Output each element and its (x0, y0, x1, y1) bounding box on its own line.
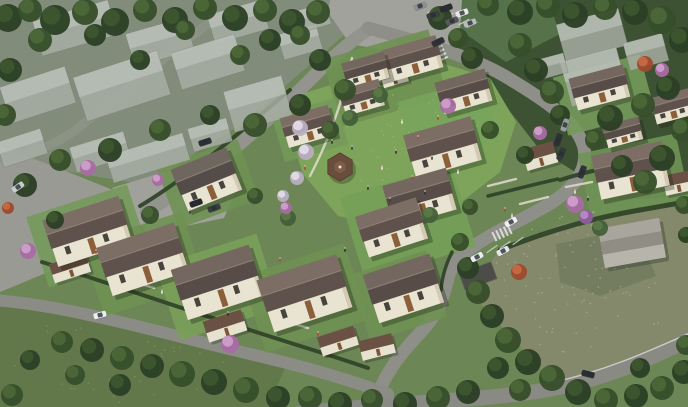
tree-highlight (635, 171, 649, 185)
speckle (556, 233, 558, 235)
speckle (538, 293, 540, 295)
tree-highlight (658, 77, 672, 91)
person (511, 215, 513, 218)
speckle (586, 312, 588, 314)
speckle (436, 94, 438, 96)
person-head (431, 155, 433, 157)
tree-highlight (633, 94, 647, 108)
tree-highlight (22, 351, 34, 363)
speckle (165, 319, 167, 321)
speckle (594, 241, 596, 243)
tree-highlight (42, 7, 60, 25)
speckle (581, 301, 583, 303)
speckle (222, 362, 224, 364)
speckle (435, 111, 437, 113)
person-head (331, 139, 333, 141)
speckle (623, 292, 625, 294)
tree-highlight (674, 361, 688, 375)
tree-highlight (235, 378, 251, 394)
speckle (196, 388, 198, 390)
person (381, 167, 383, 170)
tree-highlight (151, 120, 164, 133)
tree-highlight (3, 385, 16, 398)
speckle (541, 292, 543, 294)
speckle (516, 308, 518, 310)
person-head (587, 196, 589, 198)
person-head (574, 189, 576, 191)
speckle (654, 282, 656, 284)
speckle (583, 299, 585, 301)
person (395, 151, 397, 154)
speckle (61, 383, 63, 385)
speckle (564, 267, 566, 269)
tree-highlight (103, 9, 120, 26)
speckle (70, 388, 72, 390)
speckle (523, 253, 525, 255)
speckle (93, 389, 95, 391)
speckle (617, 315, 619, 317)
speckle (577, 226, 579, 228)
person (331, 141, 333, 144)
person (504, 209, 506, 212)
speckle (604, 297, 606, 299)
speckle (555, 255, 557, 257)
tree-highlight (482, 122, 493, 133)
person (417, 137, 419, 140)
blossom-highlight (153, 175, 160, 182)
tree-highlight (202, 106, 214, 118)
tree-highlight (132, 51, 144, 63)
person-head (504, 207, 506, 209)
person-head (417, 135, 419, 137)
speckle (507, 263, 509, 265)
speckle (609, 290, 611, 292)
person (279, 259, 281, 262)
tree-highlight (459, 258, 472, 271)
tree-highlight (526, 59, 540, 73)
tree-highlight (552, 106, 564, 118)
tree-highlight (497, 328, 513, 344)
tree-highlight (624, 0, 640, 16)
tree-highlight (112, 347, 126, 361)
speckle (527, 256, 529, 258)
speckle (591, 224, 593, 226)
tree-highlight (599, 106, 615, 122)
speckle (46, 325, 48, 327)
speckle (572, 287, 574, 289)
tree-highlight (567, 380, 583, 396)
tree-highlight (613, 156, 626, 169)
speckle (598, 286, 600, 288)
tree-highlight (428, 387, 442, 401)
tree-highlight (564, 3, 580, 19)
speckle (394, 147, 396, 149)
tree-highlight (336, 80, 349, 93)
tree-highlight (224, 6, 240, 22)
speckle (540, 278, 542, 280)
speckle (562, 351, 564, 353)
speckle (88, 382, 90, 384)
tree-highlight (463, 48, 476, 61)
person (161, 291, 163, 294)
tree-highlight (517, 350, 533, 366)
blossom-highlight (281, 203, 288, 210)
blossom-highlight (656, 64, 664, 72)
speckle (534, 302, 536, 304)
tree-highlight (468, 281, 482, 295)
tree-highlight (311, 50, 324, 63)
speckle (387, 124, 389, 126)
speckle (80, 327, 82, 329)
person-head (161, 289, 163, 291)
person (95, 251, 97, 254)
speckle (14, 365, 16, 367)
tree-highlight (30, 29, 44, 43)
speckle (172, 347, 174, 349)
person-head (367, 185, 369, 187)
tree-highlight (395, 393, 409, 407)
tree-highlight (652, 377, 666, 391)
tree-highlight (373, 88, 383, 98)
speckle (531, 229, 533, 231)
speckle (496, 262, 498, 264)
person-head (279, 257, 281, 259)
speckle (398, 108, 400, 110)
speckle (433, 99, 435, 101)
person (431, 157, 433, 160)
speckle (357, 163, 359, 165)
speckle (570, 244, 572, 246)
person-head (401, 119, 403, 121)
tree-highlight (308, 1, 322, 15)
speckle (108, 379, 110, 381)
person-head (437, 115, 439, 117)
person-head (395, 149, 397, 151)
tree-highlight (650, 7, 667, 24)
speckle (347, 126, 349, 128)
speckle (381, 130, 383, 132)
tree-highlight (248, 189, 258, 199)
speckle (587, 234, 589, 236)
person-head (389, 197, 391, 199)
tree-highlight (177, 21, 189, 33)
tree-highlight (111, 375, 124, 388)
tree-highlight (86, 25, 99, 38)
person-head (381, 165, 383, 167)
speckle (147, 341, 149, 343)
speckle (585, 289, 587, 291)
gazebo-finial (339, 166, 342, 169)
speckle (535, 318, 537, 320)
person (437, 117, 439, 120)
speckle (653, 323, 655, 325)
person-head (304, 165, 306, 167)
person (424, 192, 426, 195)
tree-highlight (67, 366, 79, 378)
person (389, 199, 391, 202)
blossom-highlight (3, 203, 10, 210)
speckle (595, 327, 597, 329)
speckle (386, 168, 388, 170)
tree-highlight (322, 122, 333, 133)
speckle (405, 151, 407, 153)
speckle (186, 327, 188, 329)
speckle (629, 294, 631, 296)
tree-highlight (511, 380, 524, 393)
speckle (505, 295, 507, 297)
person (351, 147, 353, 150)
person-head (227, 311, 229, 313)
person-head (317, 331, 319, 333)
blossom-highlight (21, 244, 31, 254)
tree-highlight (541, 366, 557, 382)
person (189, 211, 191, 214)
tree-highlight (142, 207, 153, 218)
speckle (602, 267, 604, 269)
speckle (428, 102, 430, 104)
speckle (139, 381, 141, 383)
scene-svg (0, 0, 688, 407)
speckle (161, 353, 163, 355)
tree-highlight (53, 332, 66, 345)
speckle (458, 117, 460, 119)
tree-highlight (100, 139, 114, 153)
speckle (539, 344, 541, 346)
person-head (351, 145, 353, 147)
speckle (592, 292, 594, 294)
speckle (561, 286, 563, 288)
blossom-highlight (638, 57, 648, 67)
person (304, 167, 306, 170)
blossom-highlight (222, 336, 233, 347)
person (457, 171, 459, 174)
tree-highlight (517, 147, 528, 158)
speckle (173, 351, 175, 353)
tree-highlight (232, 46, 244, 58)
tree-highlight (626, 385, 640, 399)
blossom-highlight (534, 127, 542, 135)
speckle (567, 303, 569, 305)
blossom-highlight (441, 99, 451, 109)
person-head (189, 209, 191, 211)
blossom-highlight (291, 172, 299, 180)
tree-highlight (676, 197, 687, 208)
tree-highlight (510, 34, 524, 48)
speckle (620, 286, 622, 288)
speckle (392, 94, 394, 96)
speckle (113, 396, 115, 398)
speckle (593, 211, 595, 213)
tree-highlight (463, 200, 473, 210)
tree-highlight (343, 111, 353, 121)
speckle (595, 268, 597, 270)
tree-highlight (489, 358, 502, 371)
tree-highlight (74, 0, 90, 16)
speckle (657, 322, 659, 324)
speckle (528, 245, 530, 247)
speckle (626, 292, 628, 294)
speckle (595, 258, 597, 260)
speckle (371, 150, 373, 152)
tree-highlight (452, 234, 463, 245)
speckle (130, 315, 132, 317)
person-head (511, 213, 513, 215)
tree-highlight (300, 387, 314, 401)
speckle (539, 326, 541, 328)
speckle (154, 345, 156, 347)
tree-highlight (51, 150, 64, 163)
person (227, 313, 229, 316)
tree-highlight (0, 59, 14, 73)
speckle (514, 261, 516, 263)
blossom-highlight (512, 265, 522, 275)
speckle (561, 216, 563, 218)
speckle (575, 332, 577, 334)
speckle (556, 254, 558, 256)
speckle (164, 349, 166, 351)
speckle (73, 388, 75, 390)
tree-highlight (542, 81, 556, 95)
tree-highlight (203, 370, 219, 386)
person-head (457, 169, 459, 171)
speckle (551, 331, 553, 333)
tree-highlight (330, 393, 344, 407)
person-head (95, 249, 97, 251)
blossom-highlight (580, 211, 588, 219)
speckle (134, 376, 136, 378)
speckle (559, 218, 561, 220)
speckle (546, 331, 548, 333)
tree-highlight (47, 212, 58, 223)
person (367, 187, 369, 190)
speckle (599, 277, 601, 279)
speckle (392, 136, 394, 138)
tree-highlight (281, 10, 297, 26)
speckle (525, 285, 527, 287)
speckle (567, 232, 569, 234)
speckle (504, 279, 506, 281)
speckle (118, 401, 120, 403)
tree-highlight (268, 387, 282, 401)
tree-highlight (245, 114, 259, 128)
tree-highlight (363, 390, 376, 403)
tree-highlight (482, 305, 496, 319)
speckle (199, 352, 201, 354)
speckle (47, 331, 49, 333)
tree-highlight (292, 26, 304, 38)
speckle (383, 134, 385, 136)
tree-highlight (450, 29, 462, 41)
person (587, 198, 589, 201)
person (574, 191, 576, 194)
speckle (402, 148, 404, 150)
tree-highlight (587, 131, 599, 143)
tree-highlight (142, 355, 156, 369)
aerial-view-render (0, 0, 688, 407)
tree-highlight (423, 208, 433, 218)
speckle (592, 212, 594, 214)
tree-highlight (261, 30, 274, 43)
speckle (590, 303, 592, 305)
speckle (590, 245, 592, 247)
person-head (411, 175, 413, 177)
speckle (552, 328, 554, 330)
speckle (119, 315, 121, 317)
speckle (648, 287, 650, 289)
speckle (360, 180, 362, 182)
person-head (344, 247, 346, 249)
tree-highlight (82, 339, 96, 353)
speckle (153, 394, 155, 396)
speckle (161, 355, 163, 357)
speckle (179, 347, 181, 349)
speckle (572, 251, 574, 253)
tree-highlight (596, 389, 610, 403)
blossom-highlight (293, 121, 303, 131)
blossom-highlight (81, 161, 91, 171)
tree-highlight (632, 359, 644, 371)
person (411, 177, 413, 180)
speckle (382, 179, 384, 181)
tree-highlight (671, 28, 687, 44)
person (344, 249, 346, 252)
speckle (397, 110, 399, 112)
tree-highlight (673, 119, 687, 133)
speckle (164, 335, 166, 337)
blossom-highlight (278, 191, 285, 198)
tree-highlight (171, 362, 187, 378)
speckle (180, 330, 182, 332)
speckle (554, 309, 556, 311)
speckle (377, 156, 379, 158)
speckle (408, 132, 410, 134)
speckle (590, 346, 592, 348)
tree-highlight (593, 221, 603, 231)
tree-highlight (509, 0, 525, 16)
tree-highlight (164, 8, 180, 24)
person (317, 333, 319, 336)
person (401, 121, 403, 124)
tree-highlight (651, 146, 667, 162)
speckle (75, 329, 77, 331)
person-head (424, 190, 426, 192)
blossom-highlight (567, 196, 578, 207)
speckle (129, 323, 131, 325)
speckle (574, 294, 576, 296)
speckle (588, 275, 590, 277)
tree-highlight (291, 95, 304, 108)
tree-highlight (458, 381, 472, 395)
speckle (390, 125, 392, 127)
blossom-highlight (299, 145, 309, 155)
speckle (549, 277, 551, 279)
